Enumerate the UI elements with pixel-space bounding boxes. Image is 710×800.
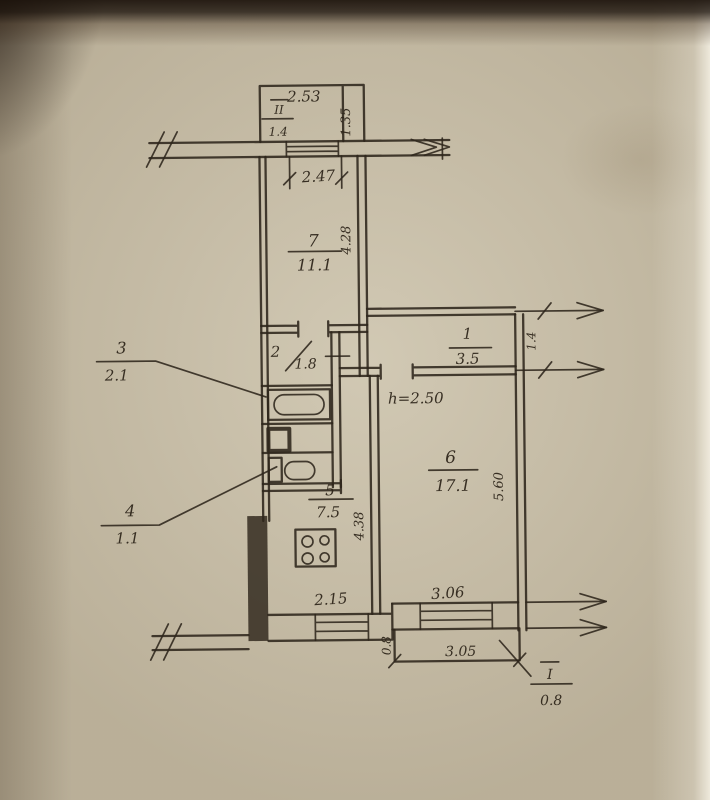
thick-left-wall-block [247, 516, 268, 641]
room1-number: 1 [462, 325, 472, 343]
toilet-icon [269, 457, 315, 481]
room5-number: 5 [325, 481, 335, 499]
scanned-floor-plan-photo: 2.53 II 1.4 1.35 2.47 7 11.1 4.28 3 2.1 … [0, 0, 710, 800]
kitchen-room6-wall [370, 376, 380, 614]
window-top-balcony [286, 141, 338, 157]
room2-number: 2 [270, 343, 281, 361]
room4-number: 4 [124, 501, 135, 520]
hatch-top-left-icon [146, 132, 177, 167]
room6-number: 6 [445, 448, 456, 468]
room3-area: 2.1 [104, 366, 129, 384]
dim-balcony-bottom-width: 3.05 [445, 644, 476, 660]
dim-kitchen-window-width: 2.15 [313, 589, 348, 609]
room7-south-wall [261, 321, 367, 337]
hatch-bottom-left-icon [150, 624, 181, 660]
window-kitchen [315, 614, 368, 641]
top-exterior-wall [149, 140, 449, 158]
room4-area: 1.1 [115, 529, 139, 547]
window-room6 [420, 603, 492, 630]
balcony-bottom-area: 0.8 [540, 693, 563, 709]
stove-icon [295, 529, 335, 566]
room2-area: 1.8 [294, 356, 317, 372]
hall-north-wall [367, 307, 515, 316]
dim-balcony-top-depth: 1.35 [339, 108, 354, 137]
dim-room6-depth: 5.60 [492, 472, 507, 501]
fixtures [268, 389, 336, 567]
room5-area: 7.5 [316, 503, 340, 521]
bottom-left-wall-lines [152, 635, 248, 650]
balcony-top-area: 1.4 [269, 125, 288, 139]
right-exterior-wall [515, 314, 526, 630]
balcony-bottom-number: I [546, 667, 553, 683]
arrow-top-band-icon [411, 139, 449, 155]
room7-area: 11.1 [297, 255, 333, 274]
dimension-lines [145, 127, 607, 670]
room7-number: 7 [308, 231, 319, 251]
dim-balcony-bottom-depth: 0.8 [379, 636, 393, 656]
dim-room6-window-width: 3.06 [431, 583, 466, 603]
dim-hall-depth: 1.4 [524, 332, 538, 351]
room6-south-wall [392, 602, 518, 629]
ceiling-height-note: h=2.50 [388, 389, 444, 408]
room1-area: 3.5 [456, 350, 480, 368]
room6-area: 17.1 [435, 476, 471, 495]
dim-balcony-top-width: 2.53 [286, 87, 321, 105]
hall-south-wall [340, 363, 516, 379]
bathtub-icon [268, 389, 330, 420]
sink-icon [268, 429, 289, 451]
dim-room7-depth: 4.28 [339, 226, 354, 256]
balcony-top-number: II [273, 103, 284, 117]
room3-number: 3 [116, 338, 126, 357]
room7-right-wall [357, 156, 367, 376]
floor-plan-drawing: 2.53 II 1.4 1.35 2.47 7 11.1 4.28 3 2.1 … [0, 0, 710, 800]
balcony-bottom-leader [500, 640, 531, 676]
walls [147, 83, 527, 664]
dim-top-window-width: 2.47 [300, 166, 336, 186]
dim-kitchen-depth: 4.38 [352, 511, 367, 541]
